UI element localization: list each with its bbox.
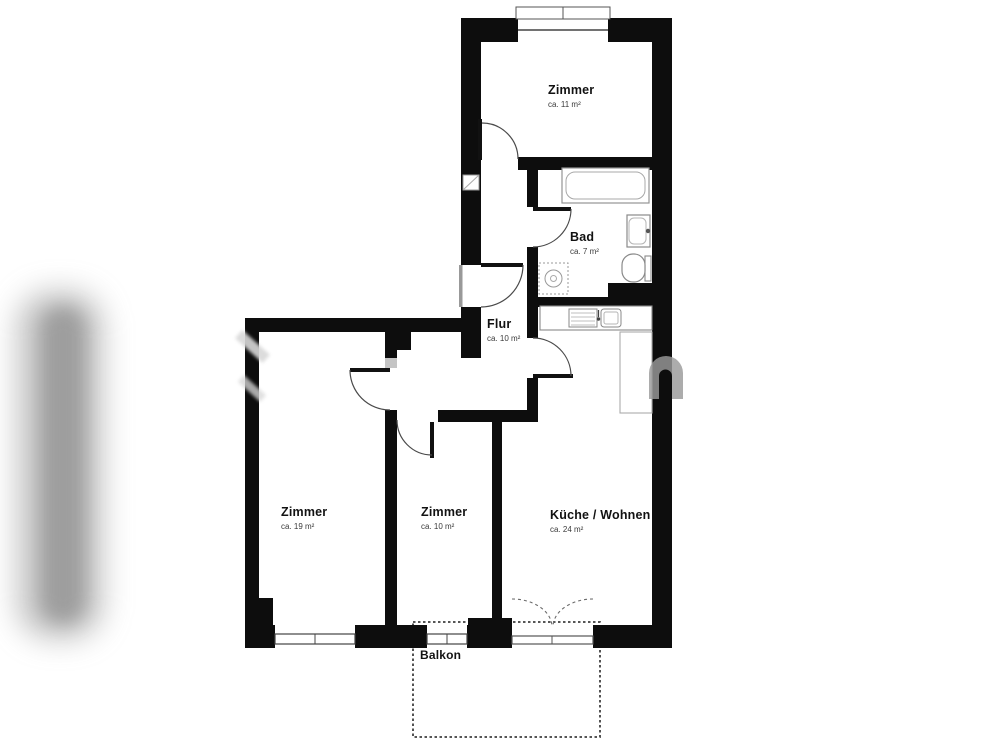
wall-hatch-segment <box>385 358 397 368</box>
room-label-kueche-wohnen: Küche / Wohnen ca. 24 m² <box>550 509 651 534</box>
wall-bottom-b <box>355 625 427 648</box>
door-entrance <box>481 263 523 307</box>
wall-flur-zimmer <box>438 410 533 422</box>
floorplan-drawing <box>0 0 1000 750</box>
window-top <box>516 7 610 30</box>
wall-divider2-pier <box>468 618 512 648</box>
door-zimmer-top <box>478 119 518 160</box>
wall-lower-top <box>245 318 473 332</box>
door-kueche <box>533 338 573 378</box>
wall-bottom-d <box>593 625 672 648</box>
wall-divider1-top <box>385 332 397 358</box>
room-label-zimmer-left: Zimmer ca. 19 m² <box>281 506 327 531</box>
wall-left-mid <box>461 307 481 358</box>
room-label-zimmer-middle: Zimmer ca. 10 m² <box>421 506 467 531</box>
room-area: ca. 24 m² <box>550 526 651 534</box>
entrance-threshold <box>459 265 463 307</box>
room-area: ca. 19 m² <box>281 523 327 531</box>
room-name: Flur <box>487 318 520 331</box>
walls <box>245 18 672 648</box>
door-zimmer-left <box>350 368 390 410</box>
wall-bottom-a <box>245 625 275 648</box>
room-name: Bad <box>570 231 599 244</box>
door-bad <box>533 207 571 247</box>
watermark-blur-bar-core <box>40 306 86 624</box>
room-label-flur: Flur ca. 10 m² <box>487 318 520 343</box>
kitchen-fixtures <box>540 306 652 413</box>
bathtub <box>562 168 649 203</box>
wall-bad-left-a <box>527 170 538 207</box>
window-zimmer-middle <box>427 634 467 644</box>
wall-divider2 <box>492 422 502 625</box>
kitchen-sink-basin <box>601 309 621 327</box>
wall-stub <box>397 332 411 350</box>
room-name: Küche / Wohnen <box>550 509 651 522</box>
room-label-bad: Bad ca. 7 m² <box>570 231 599 256</box>
room-area: ca. 7 m² <box>570 248 599 256</box>
kitchen-sink-drainer <box>569 309 597 327</box>
floorplan-page: Zimmer ca. 11 m² Bad ca. 7 m² Flur ca. 1… <box>0 0 1000 750</box>
room-label-balkon: Balkon <box>420 649 461 661</box>
wall-niche <box>463 175 479 190</box>
balcony-door-sill <box>512 636 593 644</box>
room-name: Zimmer <box>548 84 594 97</box>
room-area: ca. 11 m² <box>548 101 594 109</box>
washing-machine <box>539 263 568 294</box>
wall-bad-left-b <box>527 247 538 338</box>
window-zimmer-left <box>275 634 355 644</box>
room-label-zimmer-top: Zimmer ca. 11 m² <box>548 84 594 109</box>
bath-sink <box>627 215 650 247</box>
wall-bad-bottom-step <box>608 283 652 307</box>
room-name: Balkon <box>420 649 461 661</box>
kitchen-tall-unit <box>620 332 652 413</box>
door-zimmer-middle <box>397 420 434 458</box>
room-area: ca. 10 m² <box>421 523 467 531</box>
toilet <box>622 254 651 282</box>
wall-divider1-main <box>385 410 397 625</box>
room-name: Zimmer <box>421 506 467 519</box>
room-area: ca. 10 m² <box>487 335 520 343</box>
wall-right <box>652 18 672 648</box>
room-name: Zimmer <box>281 506 327 519</box>
